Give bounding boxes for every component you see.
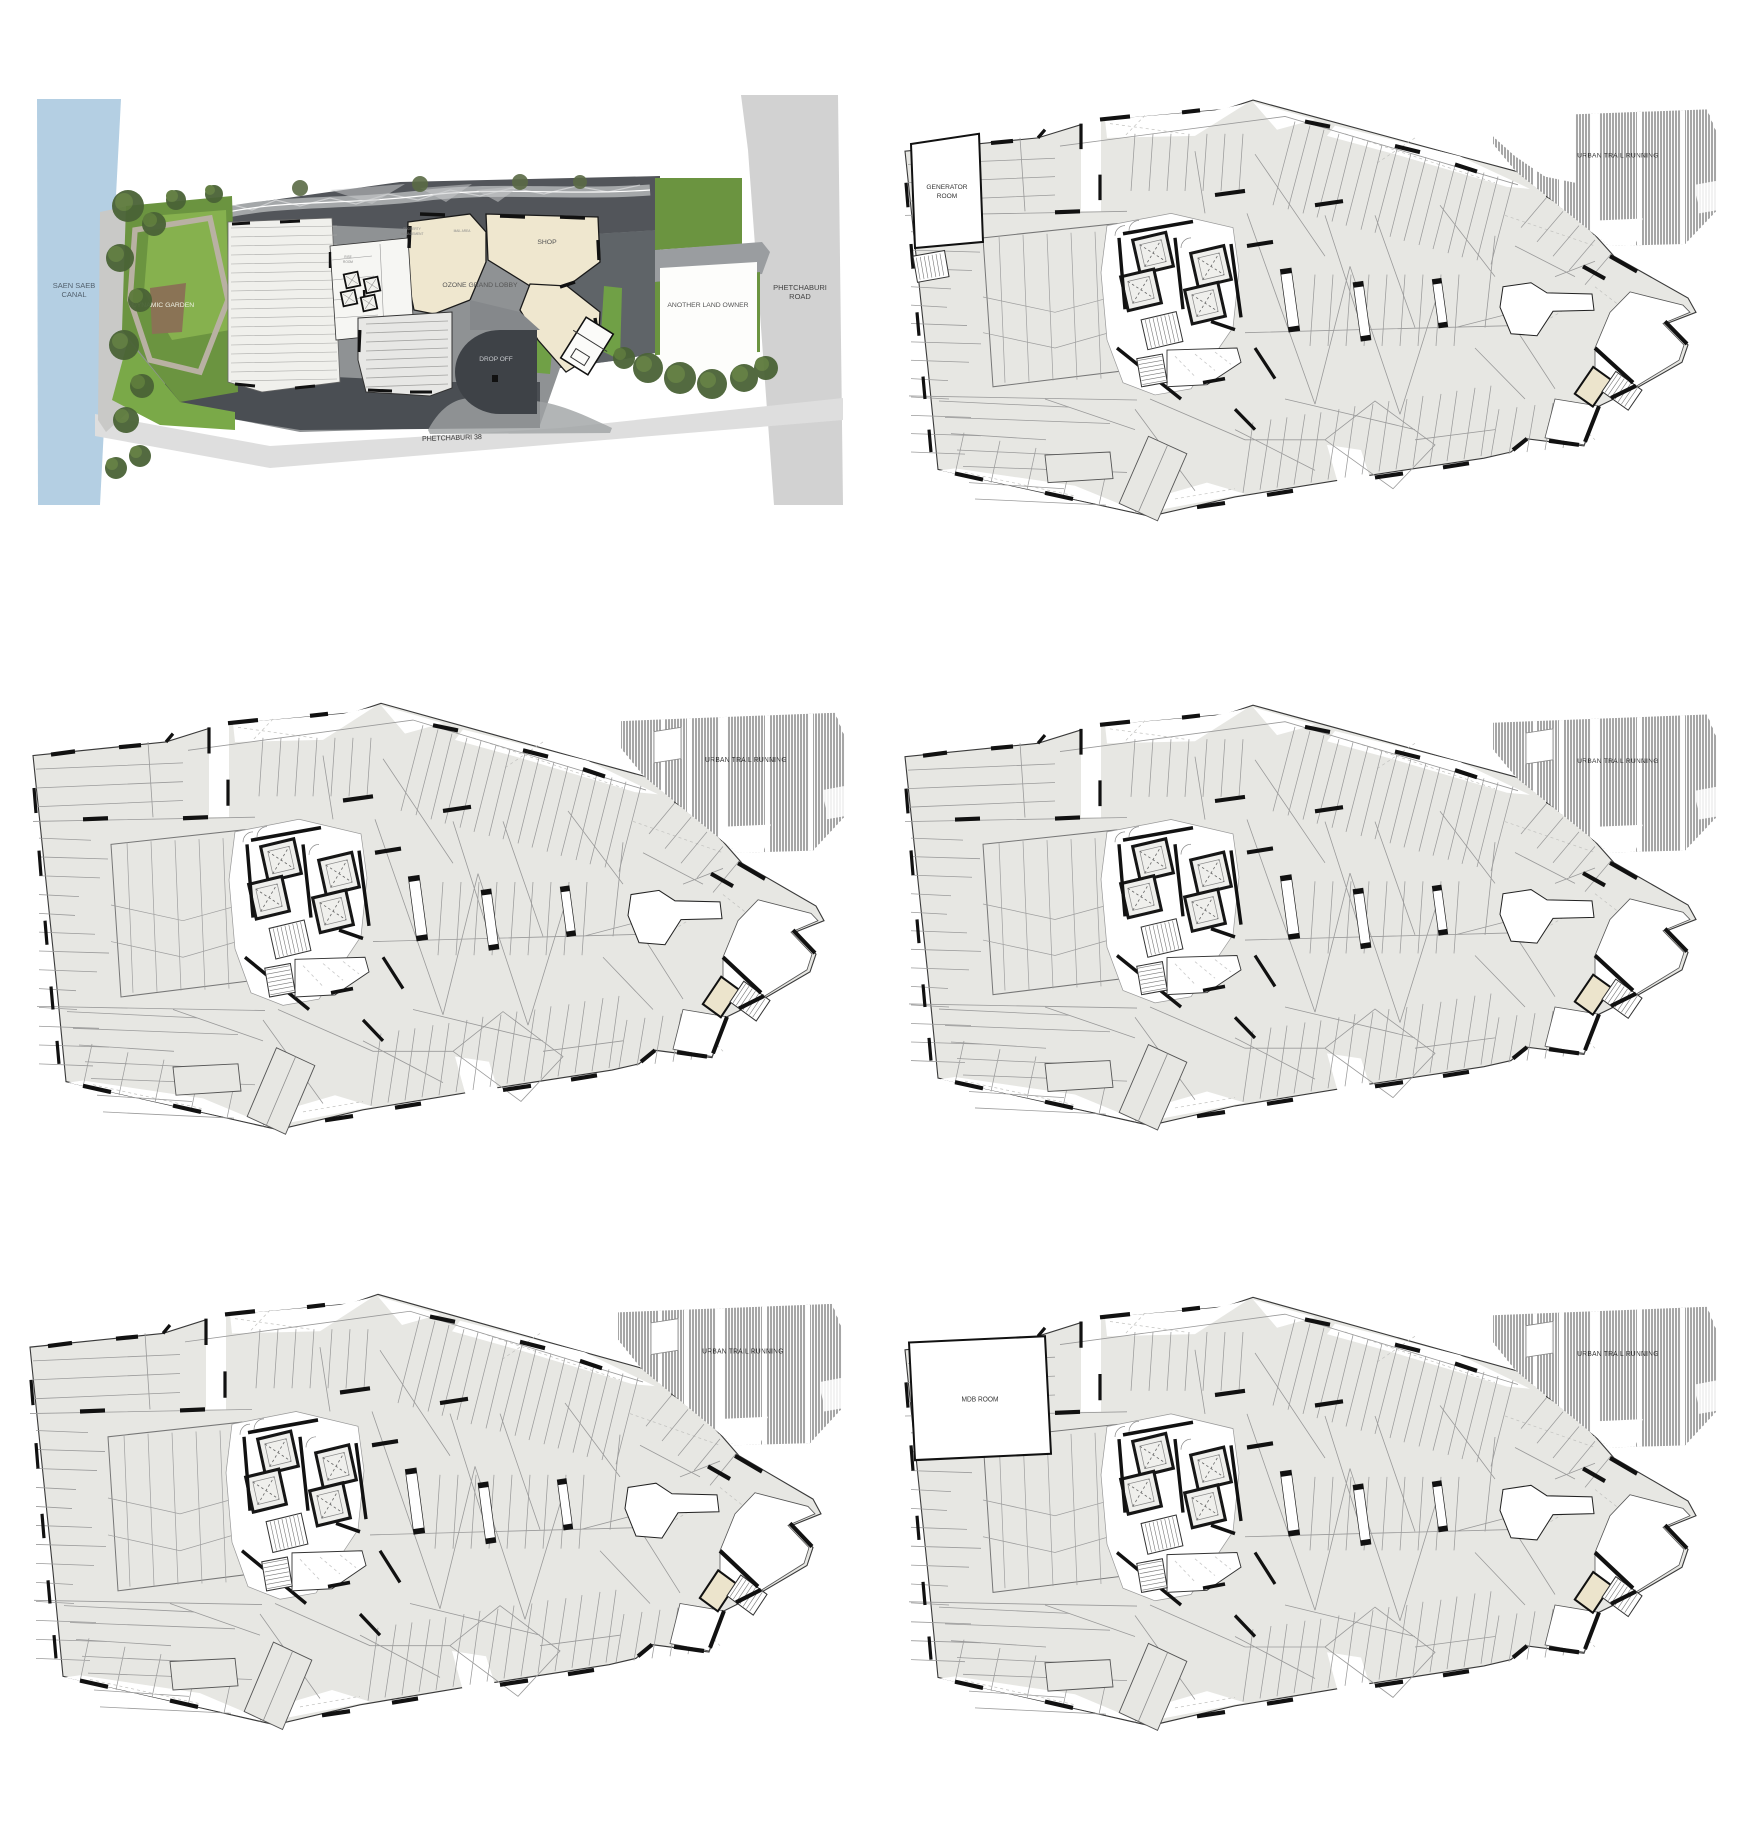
svg-text:ROOM: ROOM (343, 260, 353, 264)
svg-text:MAIL AREA: MAIL AREA (454, 229, 472, 233)
svg-text:RISE: RISE (344, 255, 351, 259)
svg-text:SAEN SAEB: SAEN SAEB (53, 281, 96, 290)
svg-text:DROP OFF: DROP OFF (479, 356, 512, 363)
svg-text:ROAD: ROAD (789, 292, 811, 301)
svg-text:ROOM: ROOM (937, 193, 958, 200)
svg-text:PROPERTY: PROPERTY (403, 227, 421, 231)
svg-text:MDB ROOM: MDB ROOM (962, 1396, 999, 1403)
svg-text:ANOTHER LAND OWNER: ANOTHER LAND OWNER (667, 302, 748, 309)
svg-text:PHETCHABURI: PHETCHABURI (773, 283, 827, 292)
svg-text:OZONE GRAND LOBBY: OZONE GRAND LOBBY (442, 282, 518, 289)
svg-text:CANAL: CANAL (61, 290, 86, 299)
svg-text:MANAGEMENT: MANAGEMENT (401, 232, 424, 236)
svg-text:GENERATOR: GENERATOR (926, 184, 967, 191)
svg-text:SHOP: SHOP (537, 239, 557, 246)
